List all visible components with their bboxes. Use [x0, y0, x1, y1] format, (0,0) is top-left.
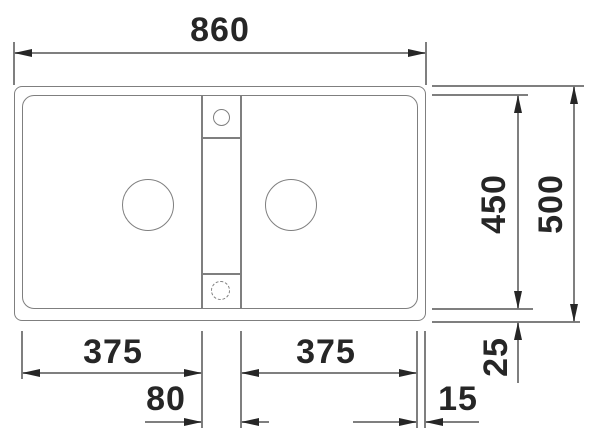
dim-860-arrow-left: [14, 49, 32, 57]
dim-375-left-arrow-right: [184, 369, 202, 377]
dim-375-right-arrow-right: [399, 369, 417, 377]
ext-outer-right-bottom: [424, 331, 426, 428]
dim-375-left-arrow-left: [22, 369, 40, 377]
dim-450-arrow-bottom: [514, 291, 522, 309]
ext-inner-right-bottom: [416, 331, 418, 428]
divider-bottom-ledge-line: [202, 273, 242, 275]
dim-450-line: [517, 95, 519, 309]
ext-outer-bottom-right: [432, 321, 580, 323]
dim-375-right-label: 375: [296, 335, 356, 369]
ext-outer-top-right: [432, 85, 584, 87]
dim-80-arrow-left: [184, 418, 202, 426]
ext-divider-left-bottom: [201, 331, 203, 428]
dim-450-label: 450: [477, 174, 511, 234]
dim-860-line: [14, 52, 426, 54]
divider-left-edge: [201, 95, 203, 309]
dim-375-right-arrow-left: [241, 369, 259, 377]
dim-500-line: [573, 86, 575, 322]
dim-860-label: 860: [190, 13, 250, 47]
dim-80-arrow-right: [241, 418, 259, 426]
dim-500-arrow-top: [570, 86, 578, 104]
dim-375-left-line: [22, 372, 202, 374]
divider-top-ledge-line: [202, 137, 242, 139]
dim-15-arrow-left: [399, 418, 417, 426]
right-drain-circle: [265, 179, 317, 231]
dim-15-arrow-right: [425, 418, 443, 426]
dim-500-label: 500: [534, 174, 568, 234]
dim-450-arrow-top: [514, 95, 522, 113]
dim-500-arrow-bottom: [570, 304, 578, 322]
tap-hole-circle: [213, 109, 230, 126]
sink-technical-drawing: 860 450 500 25 375 375 80 15: [0, 0, 600, 446]
left-drain-circle: [122, 179, 174, 231]
dim-15-label: 15: [438, 382, 478, 416]
dim-375-left-label: 375: [83, 335, 143, 369]
knockout-hole-circle: [211, 281, 230, 300]
divider-right-edge: [240, 95, 242, 309]
dim-25-label: 25: [479, 337, 513, 377]
dim-25-arrow-up: [514, 322, 522, 340]
dim-80-label: 80: [146, 382, 186, 416]
dim-860-arrow-right: [408, 49, 426, 57]
dim-375-right-line: [241, 372, 417, 374]
ext-divider-right-bottom: [240, 331, 242, 428]
sink-inner-outline: [22, 95, 418, 309]
